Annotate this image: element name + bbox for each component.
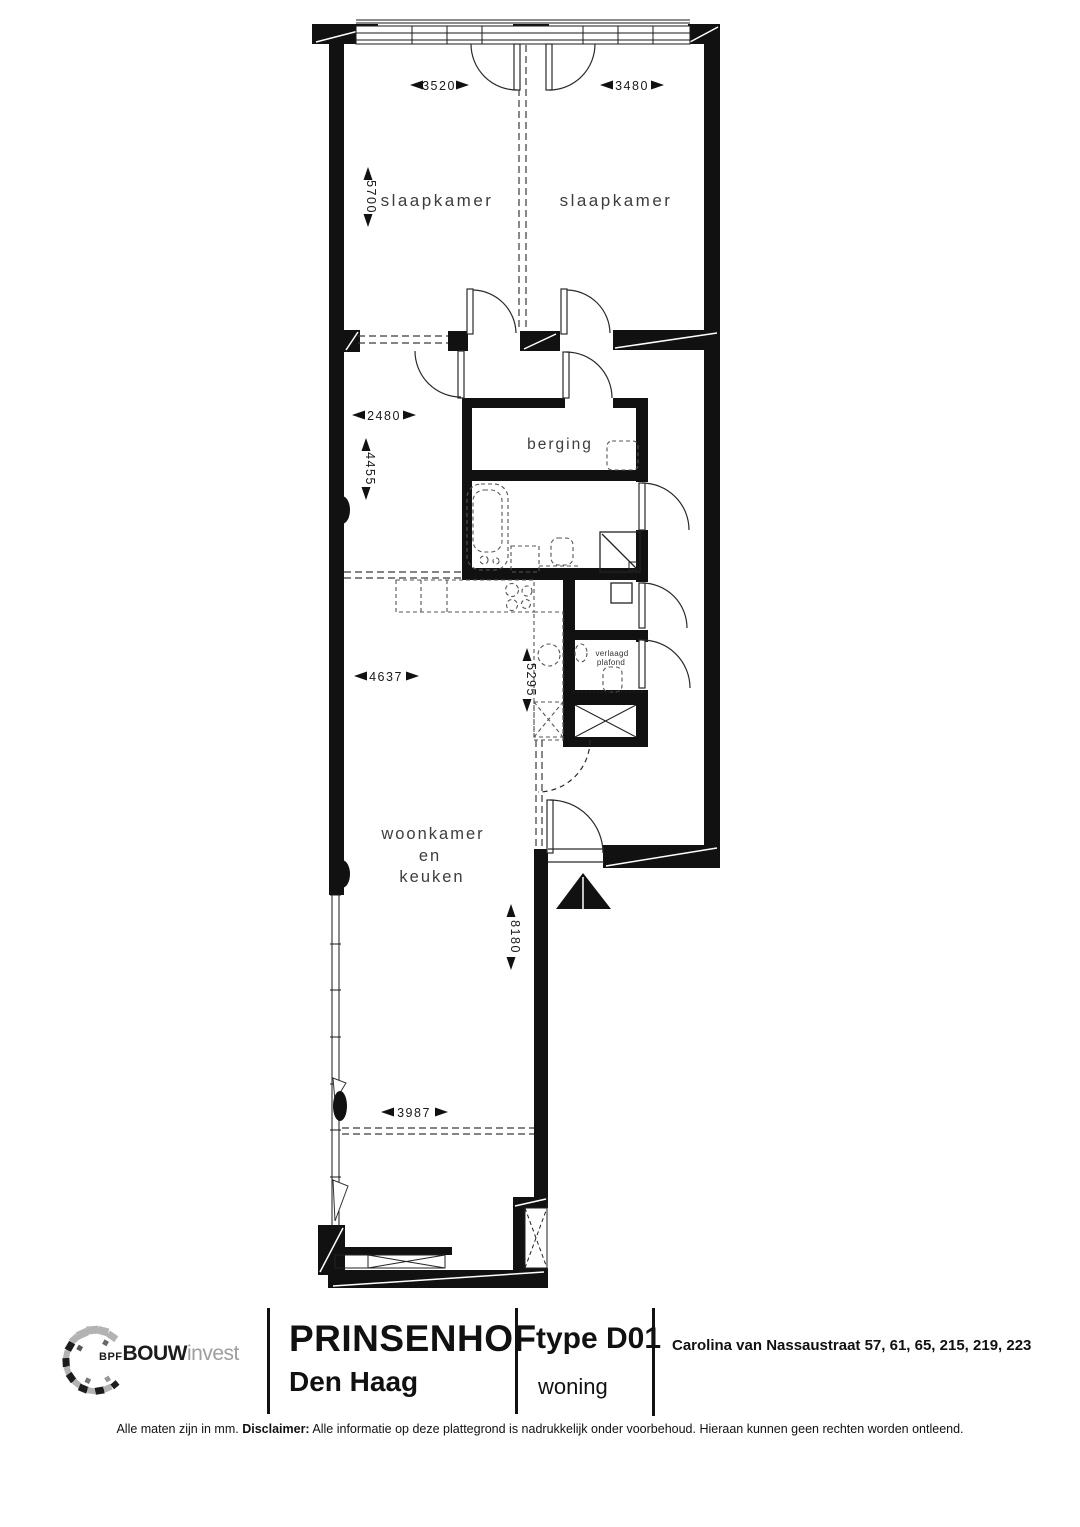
dim-living-width-upper: 4637 <box>369 670 403 684</box>
logo-invest-label: invest <box>187 1342 239 1366</box>
logo-bpf-label: BPF <box>99 1351 123 1363</box>
entrance-arrow-icon <box>556 873 611 909</box>
boiler-icon <box>611 583 632 603</box>
project-city: Den Haag <box>289 1366 418 1398</box>
project-name: PRINSENHOF <box>289 1318 537 1360</box>
window-band-top <box>356 20 690 44</box>
room-label-bedroom-left: slaapkamer <box>381 191 494 210</box>
address: Carolina van Nassaustraat 57, 61, 65, 21… <box>672 1337 1031 1354</box>
dim-living-width-lower: 3987 <box>397 1106 431 1120</box>
hand-basin-icon <box>575 644 587 662</box>
ceiling-note-1: verlaagd <box>595 649 628 658</box>
ceiling-note-2: plafond <box>597 658 625 667</box>
toilet-door <box>639 640 690 688</box>
meter-cupboard-door <box>639 583 687 628</box>
room-label-living-1: woonkamer <box>380 825 484 843</box>
hob-burner-icon <box>507 600 518 611</box>
disclaimer-prefix: Alle maten zijn in mm. <box>116 1422 238 1436</box>
dim-bedroom-right-width: 3480 <box>615 79 649 93</box>
dim-living-depth: 8180 <box>508 920 522 954</box>
room-label-storage: berging <box>527 436 593 453</box>
hob-burner-icon <box>522 586 532 596</box>
room-label-living-3: keuken <box>399 868 464 886</box>
bedroom-right-door <box>561 289 610 334</box>
storage-cabinet-icon <box>607 441 638 470</box>
dim-kitchen-zone-depth: 5295 <box>524 663 538 697</box>
sink-icon <box>538 644 560 666</box>
balcony-door-left <box>471 44 520 90</box>
storage-door <box>563 352 612 398</box>
front-door <box>547 800 604 862</box>
hob-burner-icon <box>506 584 519 597</box>
title-block-divider <box>267 1308 270 1414</box>
shaft-bottom-right <box>525 1197 547 1270</box>
dim-storage-zone-depth: 4455 <box>363 452 377 486</box>
bedroom-left-door <box>467 289 516 334</box>
disclaimer: Alle maten zijn in mm. Disclaimer: Alle … <box>0 1422 1080 1436</box>
room-label-bedroom-right: slaapkamer <box>560 191 673 210</box>
balcony-door-right <box>546 44 595 90</box>
toilet-icon <box>603 667 622 692</box>
dim-bedroom-depth: 5700 <box>364 180 378 214</box>
dimension-labels: 3520 3480 5700 2480 4455 4637 5295 8180 … <box>363 79 649 1120</box>
logo-bouw-label: BOUW <box>123 1342 188 1366</box>
disclaimer-text: Alle informatie op deze plattegrond is n… <box>312 1422 963 1436</box>
wall-hatching <box>316 27 718 1286</box>
entry-swing-dashed <box>538 740 590 792</box>
washbasin-icon <box>551 538 573 565</box>
dim-storage-zone-width: 2480 <box>367 409 401 423</box>
floorplan-drawing: 3520 3480 5700 2480 4455 4637 5295 8180 … <box>0 0 1080 1527</box>
dim-bedroom-left-width: 3520 <box>422 79 456 93</box>
window-band-left <box>330 895 341 1228</box>
dimension-arrows <box>352 81 664 1117</box>
unit-type: type D01 <box>536 1322 661 1356</box>
room-label-living-2: en <box>419 847 441 865</box>
room-labels: slaapkamer slaapkamer berging woonkamer … <box>380 191 672 886</box>
convector-icon <box>335 1255 445 1268</box>
unit-kind: woning <box>538 1374 608 1400</box>
bathroom-door <box>639 483 689 530</box>
disclaimer-label: Disclaimer: <box>242 1422 309 1436</box>
logo-wordmark: BPFBOUWinvest <box>99 1342 239 1366</box>
door-swings <box>415 44 690 862</box>
hall-door <box>415 351 464 398</box>
kitchen-fixtures <box>396 580 563 740</box>
hob-burner-icon <box>522 600 531 609</box>
